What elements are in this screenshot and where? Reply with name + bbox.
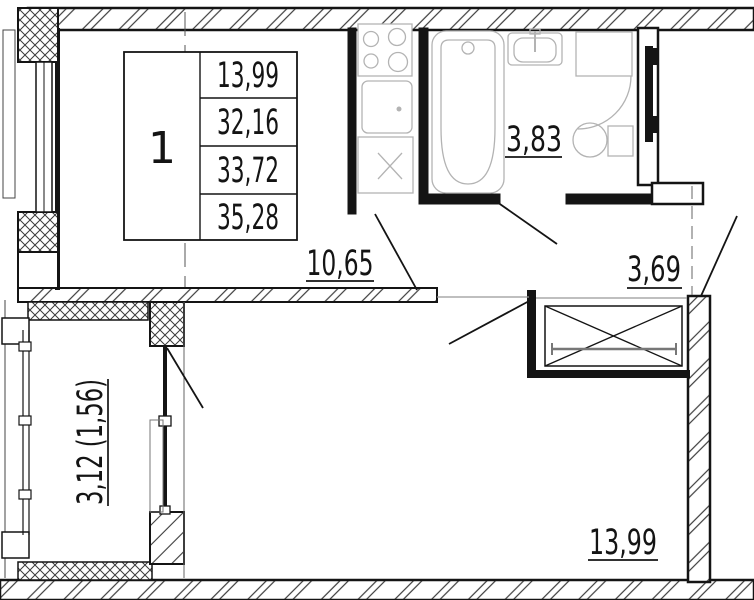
vent-block-bottom [646,116,657,133]
right-exterior-wall [688,296,710,582]
glazing-node [19,342,31,351]
balcony-area-label: 3,12 (1,56) [71,379,111,505]
floor-plan-drawing: 1 13,99 32,16 33,72 35,28 10,65 3,83 3,6… [0,0,754,600]
room-area-label: 13,99 [589,523,657,563]
window-pier-bottom [18,212,58,252]
unit-node [160,506,170,514]
kitchen-cabinet [358,137,413,193]
balcony-top-insulation [28,302,148,320]
floor-plan-page: 1 13,99 32,16 33,72 35,28 10,65 3,83 3,6… [0,0,754,600]
balcony-pier-top [2,318,29,344]
table-value-reduced-total: 33,72 [217,151,279,191]
window-pier-top [18,8,58,62]
bathroom-area-label: 3,83 [506,120,562,160]
rooms-count-value: 1 [148,123,176,174]
table-value-total: 35,28 [217,198,279,238]
table-value-area: 32,16 [217,103,279,143]
balcony-pier-bottom [2,532,29,558]
wall-block [18,252,58,288]
balcony-door-pier-bottom [150,512,184,564]
mid-horizontal-wall [18,288,437,302]
hall-area-label: 3,69 [627,250,681,290]
table-value-living: 13,99 [217,56,279,96]
bathroom-bottom-wall-right [566,194,654,204]
kitchen-sink [362,81,412,133]
vent-block-top [646,48,657,65]
kitchen-partition-wall [348,28,356,214]
unit-node [159,416,171,426]
balcony-doorwindow-unit [163,346,167,514]
wardrobe-bottom-wall [527,370,690,378]
bathroom-left-wall [419,28,428,204]
bottom-exterior-wall [0,580,754,600]
balcony-bottom-insulation [18,562,152,580]
glazing-node [19,416,31,425]
sink-drain [397,107,402,112]
unit-stats-table: 1 13,99 32,16 33,72 35,28 [124,52,297,240]
bathroom-bottom-wall-left [419,194,500,204]
kitchen-fixtures [358,24,413,193]
entry-jamb-wall [652,183,703,204]
wardrobe-left-wall [527,290,536,378]
balcony-door-pier-top [150,302,184,346]
kitchen-area-label: 10,65 [307,244,374,284]
glazing-node [19,490,31,499]
